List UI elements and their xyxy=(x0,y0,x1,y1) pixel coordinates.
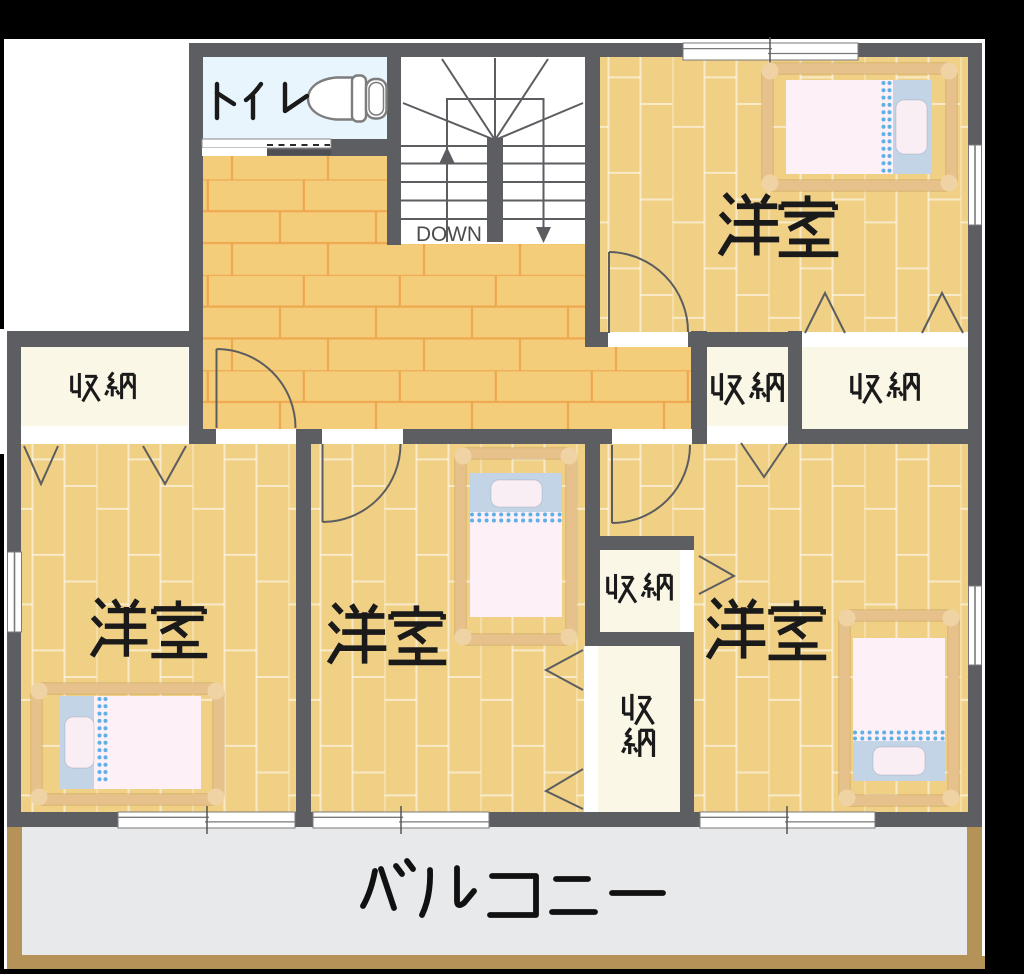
svg-text:DOWN: DOWN xyxy=(416,223,482,246)
